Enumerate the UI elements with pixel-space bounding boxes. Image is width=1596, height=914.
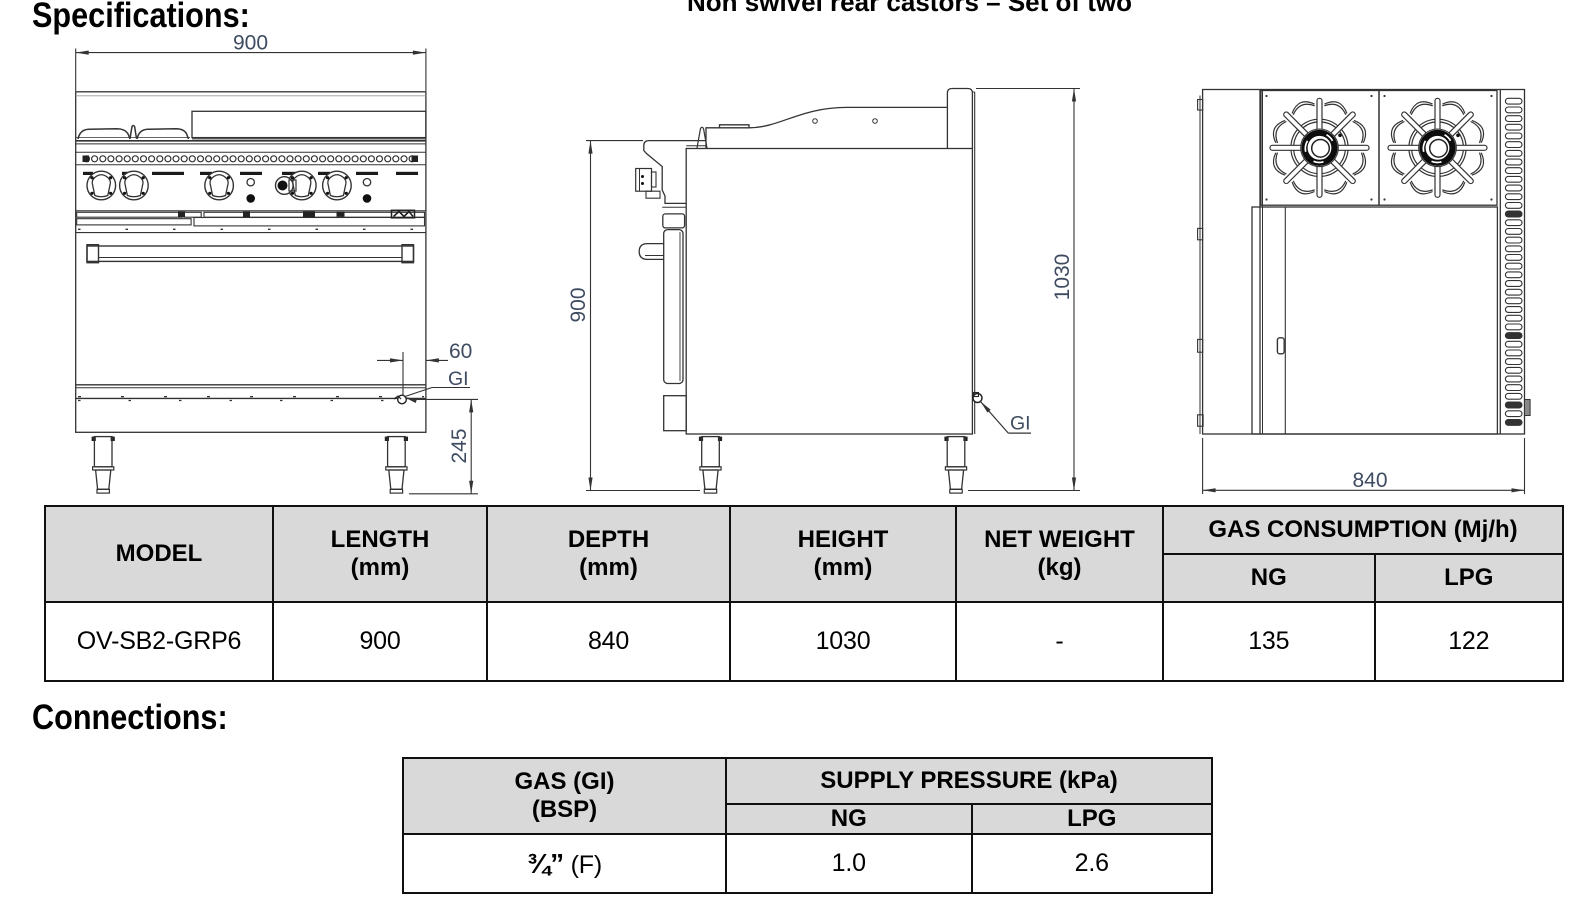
svg-text:1030: 1030	[1051, 254, 1074, 301]
svg-text:60: 60	[449, 340, 472, 363]
svg-text:GI: GI	[448, 368, 469, 390]
svg-text:900: 900	[233, 32, 268, 55]
svg-text:900: 900	[567, 287, 590, 322]
svg-text:840: 840	[1352, 469, 1387, 492]
svg-text:GI: GI	[1010, 413, 1031, 435]
svg-text:245: 245	[448, 428, 471, 463]
